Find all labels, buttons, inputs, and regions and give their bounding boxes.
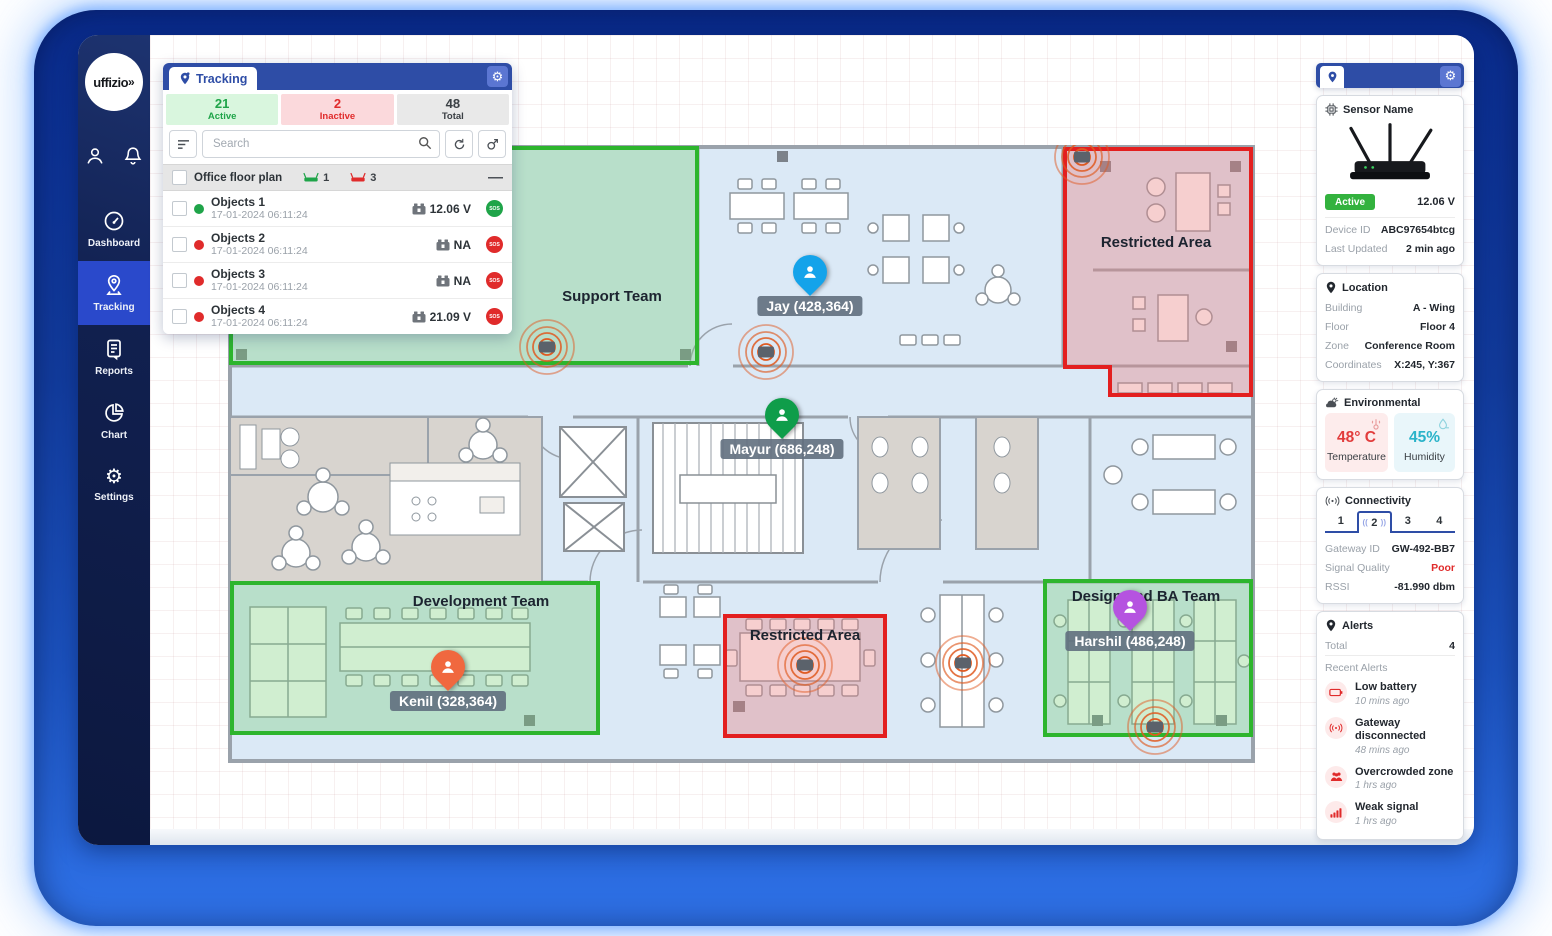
gateway-tab-1[interactable]: 1 xyxy=(1325,511,1357,531)
group-row-office-floor-plan[interactable]: Office floor plan 1 3 — xyxy=(163,164,512,191)
object-name: Objects 4 xyxy=(211,303,308,317)
inactive-count: 2 xyxy=(281,96,393,111)
sensor-panel-header: ⚙ xyxy=(1316,63,1464,88)
status-dot-active xyxy=(194,204,204,214)
uffizio-logo[interactable]: uffizio» xyxy=(85,53,143,111)
person-label-harshil: Harshil (486,248) xyxy=(1065,631,1194,651)
connectivity-card-title: Connectivity xyxy=(1345,495,1411,507)
object-timestamp: 17-01-2024 06:11:24 xyxy=(211,209,308,222)
router-image xyxy=(1331,119,1449,185)
sidebar-nav: Dashboard Tracking Reports Chart ⚙ Setti… xyxy=(78,197,150,517)
locate-button[interactable] xyxy=(478,130,506,158)
settings-gear-icon: ⚙ xyxy=(105,467,123,487)
battery-icon xyxy=(436,239,450,251)
signal-bars-icon xyxy=(1325,801,1347,823)
zone-restricted-top[interactable] xyxy=(1065,149,1251,395)
pin-icon xyxy=(1327,71,1338,84)
chart-icon xyxy=(102,401,126,425)
object-timestamp: 17-01-2024 06:11:24 xyxy=(211,245,308,258)
sidebar: uffizio» Dashboard Tracking Reports xyxy=(78,35,150,845)
battery-icon xyxy=(1325,681,1347,703)
sidebar-item-dashboard[interactable]: Dashboard xyxy=(78,197,150,261)
sensor-panel-gear-icon[interactable]: ⚙ xyxy=(1440,66,1461,87)
people-icon xyxy=(1325,766,1347,788)
location-pin-icon xyxy=(1325,281,1337,295)
zone-label-restricted-center: Restricted Area xyxy=(750,627,860,644)
stat-inactive[interactable]: 2 Inactive xyxy=(281,94,393,125)
antenna-icon xyxy=(1325,496,1340,506)
group-checkbox[interactable] xyxy=(172,170,187,185)
status-stats: 21 Active 2 Inactive 48 Total xyxy=(163,90,512,128)
status-dot-inactive xyxy=(194,312,204,322)
temperature-value: 48° C xyxy=(1327,429,1386,447)
sos-badge[interactable]: SOS xyxy=(486,200,503,217)
logo-text: uffizio xyxy=(93,75,128,90)
alert-time: 48 mins ago xyxy=(1355,745,1455,756)
gateway-tab-4[interactable]: 4 xyxy=(1424,511,1456,531)
filter-button[interactable] xyxy=(169,130,197,158)
sensor-detail-panel: ⚙ Sensor Name Active 12.06 xyxy=(1316,63,1464,845)
object-row-4[interactable]: Objects 4 17-01-2024 06:11:24 21.09 V SO… xyxy=(163,299,512,334)
weather-icon xyxy=(1325,397,1339,409)
object-name: Objects 2 xyxy=(211,231,308,245)
signal-quality-label: Signal Quality xyxy=(1325,562,1390,574)
object-name: Objects 1 xyxy=(211,195,308,209)
sidebar-item-label: Dashboard xyxy=(88,238,140,249)
gateway-tabs: 1 2 3 4 xyxy=(1325,511,1455,533)
alert-overcrowded-zone[interactable]: Overcrowded zone 1 hrs ago xyxy=(1325,761,1455,797)
location-card: Location BuildingA - Wing FloorFloor 4 Z… xyxy=(1316,273,1464,382)
alert-title: Overcrowded zone xyxy=(1355,766,1453,779)
building-label: Building xyxy=(1325,302,1362,314)
tracking-panel-header: Tracking ⚙ xyxy=(163,63,512,90)
object-row-2[interactable]: Objects 2 17-01-2024 06:11:24 NA SOS xyxy=(163,227,512,263)
floor-label: Floor xyxy=(1325,321,1349,333)
object-name: Objects 3 xyxy=(211,267,308,281)
object-row-3[interactable]: Objects 3 17-01-2024 06:11:24 NA SOS xyxy=(163,263,512,299)
sos-badge[interactable]: SOS xyxy=(486,272,503,289)
stat-active[interactable]: 21 Active xyxy=(166,94,278,125)
refresh-icon xyxy=(453,138,466,151)
gateway-tab-2[interactable]: 2 xyxy=(1357,511,1393,533)
group-name: Office floor plan xyxy=(194,172,282,184)
zone-label: Zone xyxy=(1325,340,1349,352)
chip-icon xyxy=(1325,103,1338,116)
sos-badge[interactable]: SOS xyxy=(486,236,503,253)
alert-time: 1 hrs ago xyxy=(1355,780,1453,791)
tab-tracking[interactable]: Tracking xyxy=(169,67,257,90)
map-canvas[interactable]: Support Team Development Team Design and… xyxy=(150,35,1474,845)
battery-reading: 21.09 V xyxy=(412,310,471,324)
logo-arrow: » xyxy=(128,75,135,89)
total-count: 48 xyxy=(397,96,509,111)
battery-icon xyxy=(412,311,426,323)
object-timestamp: 17-01-2024 06:11:24 xyxy=(211,317,308,330)
rssi-label: RSSI xyxy=(1325,581,1350,593)
humidity-value: 45% xyxy=(1396,429,1453,447)
total-label: Total xyxy=(397,111,509,122)
rssi-value: -81.990 dbm xyxy=(1394,581,1455,593)
location-card-title: Location xyxy=(1342,282,1388,294)
alert-low-battery[interactable]: Low battery 10 mins ago xyxy=(1325,676,1455,712)
stat-total[interactable]: 48 Total xyxy=(397,94,509,125)
filter-icon xyxy=(177,139,190,150)
antenna-icon xyxy=(1325,717,1347,739)
search-icon[interactable] xyxy=(418,136,432,150)
locate-icon xyxy=(486,138,499,151)
tracking-tab-label: Tracking xyxy=(196,72,247,86)
alert-title: Weak signal xyxy=(1355,801,1418,814)
humidity-label: Humidity xyxy=(1396,451,1453,463)
gateway-id-value: GW-492-BB7 xyxy=(1392,543,1455,555)
alert-weak-signal[interactable]: Weak signal 1 hrs ago xyxy=(1325,796,1455,832)
search-input[interactable] xyxy=(211,137,413,151)
sensor-card-title: Sensor Name xyxy=(1343,104,1413,116)
connectivity-card: Connectivity 1 2 3 4 Gateway IDGW-492-BB… xyxy=(1316,487,1464,604)
person-label-jay: Jay (428,364) xyxy=(757,296,862,316)
alert-time: 1 hrs ago xyxy=(1355,816,1418,827)
search-row xyxy=(163,128,512,164)
sidebar-item-reports[interactable]: Reports xyxy=(78,325,150,389)
environmental-card: Environmental 48° C Temperature 45% Humi… xyxy=(1316,389,1464,480)
dashboard-icon xyxy=(102,209,126,233)
temperature-icon xyxy=(1370,418,1382,430)
person-label-mayur: Mayur (686,248) xyxy=(720,439,843,459)
recent-alerts-label: Recent Alerts xyxy=(1325,662,1455,674)
window-bottom-strip xyxy=(150,829,1474,845)
reports-icon xyxy=(102,337,126,361)
sidebar-item-label: Tracking xyxy=(93,302,134,313)
coordinates-value: X:245, Y:367 xyxy=(1394,359,1455,371)
object-checkbox[interactable] xyxy=(172,309,187,324)
group-inactive-count: 3 xyxy=(350,172,376,184)
tracking-icon xyxy=(102,273,126,297)
voltage-value: 12.06 V xyxy=(1417,196,1455,208)
alerts-card: Alerts Total 4 Recent Alerts Low battery… xyxy=(1316,611,1464,840)
alert-time: 10 mins ago xyxy=(1355,696,1417,707)
sos-badge[interactable]: SOS xyxy=(486,308,503,325)
sidebar-item-label: Settings xyxy=(94,492,133,503)
alert-gateway-disconnected[interactable]: Gateway disconnected 48 mins ago xyxy=(1325,712,1455,761)
elevators xyxy=(560,427,626,551)
last-updated-label: Last Updated xyxy=(1325,243,1387,255)
device-id-label: Device ID xyxy=(1325,224,1371,236)
collapse-button[interactable]: — xyxy=(488,170,503,185)
router-red-icon xyxy=(350,172,366,183)
search-box xyxy=(202,130,440,158)
battery-reading: 12.06 V xyxy=(412,202,471,216)
zone-label-restricted-top: Restricted Area xyxy=(1101,234,1211,251)
object-row-1[interactable]: Objects 1 17-01-2024 06:11:24 12.06 V SO… xyxy=(163,191,512,227)
zone-value: Conference Room xyxy=(1365,340,1455,352)
sidebar-item-label: Reports xyxy=(95,366,133,377)
building-value: A - Wing xyxy=(1413,302,1455,314)
battery-icon xyxy=(436,275,450,287)
sensor-panel-tab[interactable] xyxy=(1320,66,1344,88)
sidebar-item-settings[interactable]: ⚙ Settings xyxy=(78,453,150,517)
active-count: 21 xyxy=(166,96,278,111)
alert-title: Gateway disconnected xyxy=(1355,717,1455,743)
router-green-icon xyxy=(303,172,319,183)
coordinates-label: Coordinates xyxy=(1325,359,1382,371)
gateway-tab-3[interactable]: 3 xyxy=(1392,511,1424,531)
object-checkbox[interactable] xyxy=(172,201,187,216)
status-badge: Active xyxy=(1325,194,1375,210)
tracking-pin-icon xyxy=(179,72,191,86)
panel-settings-gear-icon[interactable]: ⚙ xyxy=(487,66,508,87)
floor-value: Floor 4 xyxy=(1420,321,1455,333)
tracking-panel: Tracking ⚙ 21 Active 2 Inactive 48 Total xyxy=(163,63,512,334)
refresh-button[interactable] xyxy=(445,130,473,158)
app-window: uffizio» Dashboard Tracking Reports xyxy=(78,35,1474,845)
alerts-total-value: 4 xyxy=(1449,640,1455,652)
zone-label-development-team: Development Team xyxy=(413,593,549,610)
object-checkbox[interactable] xyxy=(172,237,187,252)
alerts-card-title: Alerts xyxy=(1342,620,1373,632)
temperature-tile: 48° C Temperature xyxy=(1325,413,1388,472)
notifications-bell-icon[interactable] xyxy=(122,145,144,167)
humidity-icon xyxy=(1437,418,1449,430)
sidebar-item-chart[interactable]: Chart xyxy=(78,389,150,453)
active-label: Active xyxy=(166,111,278,122)
humidity-tile: 45% Humidity xyxy=(1394,413,1455,472)
environmental-card-title: Environmental xyxy=(1344,397,1420,409)
signal-quality-value: Poor xyxy=(1431,562,1455,574)
alert-title: Low battery xyxy=(1355,681,1417,694)
group-active-count: 1 xyxy=(303,172,329,184)
status-dot-inactive xyxy=(194,240,204,250)
zone-label-support-team: Support Team xyxy=(562,288,662,305)
status-dot-inactive xyxy=(194,276,204,286)
alerts-pin-icon xyxy=(1325,619,1337,633)
sensor-card: Sensor Name Active 12.06 V Device ID ABC xyxy=(1316,95,1464,266)
last-updated-value: 2 min ago xyxy=(1406,243,1455,255)
user-icon[interactable] xyxy=(84,145,106,167)
object-checkbox[interactable] xyxy=(172,273,187,288)
gateway-id-label: Gateway ID xyxy=(1325,543,1380,555)
battery-icon xyxy=(412,203,426,215)
temperature-label: Temperature xyxy=(1327,451,1386,463)
battery-reading: NA xyxy=(436,238,471,252)
sidebar-item-tracking[interactable]: Tracking xyxy=(78,261,150,325)
battery-reading: NA xyxy=(436,274,471,288)
sidebar-item-label: Chart xyxy=(101,430,127,441)
object-timestamp: 17-01-2024 06:11:24 xyxy=(211,281,308,294)
inactive-label: Inactive xyxy=(281,111,393,122)
device-id-value: ABC97654btcg xyxy=(1381,224,1455,236)
alerts-total-label: Total xyxy=(1325,640,1347,652)
person-label-kenil: Kenil (328,364) xyxy=(390,691,506,711)
